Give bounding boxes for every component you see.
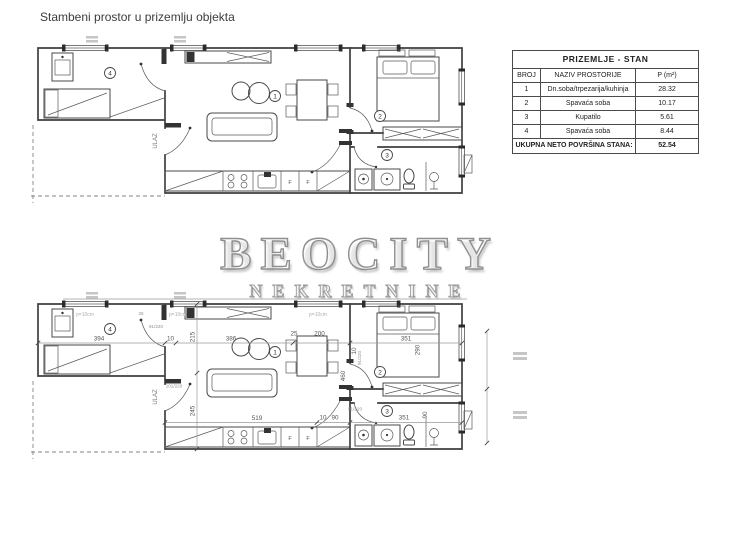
total-value: 52.54 [636,139,699,154]
scanned-floor-plan-page: Stambeni prostor u prizemlju objekta [0,0,740,550]
table-row: 4 Spavaća soba 8.44 [513,125,699,139]
dim-wall-10: 10 [319,415,327,422]
table-total-row: UKUPNA NETO POVRŠINA STANA: 52.54 [513,139,699,154]
room-name: Spavaća soba [541,97,636,111]
room-name: Spavaća soba [541,125,636,139]
room-no: 3 [513,111,541,125]
table-title: PRIZEMLJE - STAN [513,51,699,69]
door-size-label: 91/220 [357,351,362,365]
dim-height-245: 245 [190,405,197,416]
dim-table: 200 [314,331,325,338]
room-area: 28.32 [636,83,699,97]
table-row: 3 Kupatilo 5.61 [513,111,699,125]
dim-height-215: 215 [190,331,197,342]
door-size-label: 91/220 [348,407,362,412]
floor-plan-bottom [31,292,472,459]
table-row: 1 Dn.soba/trpezarija/kuhinja 28.32 [513,83,699,97]
dim-height-460: 460 [340,370,347,381]
col-header-broj: BROJ [513,69,541,83]
col-header-naziv: NAZIV PROSTORIJE [541,69,636,83]
room-name: Dn.soba/trpezarija/kuhinja [541,83,636,97]
parapet-label: p=10cm [309,312,327,318]
dim-90: 90 [422,411,429,419]
table-header-row: BROJ NAZIV PROSTORIJE P (m²) [513,69,699,83]
dim-kitchen-519: 519 [252,415,263,422]
floor-plan-top [31,36,472,203]
room-area: 8.44 [636,125,699,139]
total-label: UKUPNA NETO POVRŠINA STANA: [513,139,636,154]
room-area: 5.61 [636,111,699,125]
window-mark [513,352,527,419]
dim-bedroom-width: 351 [401,336,412,343]
room-no: 4 [513,125,541,139]
door-size-label: 91/220 [149,324,163,329]
dim-offset: 25 [290,331,298,338]
room-no: 2 [513,97,541,111]
col-header-area: P (m²) [636,69,699,83]
parapet-label: p=10cm [169,312,187,318]
dim-living-width: 386 [226,336,237,343]
dimension-annotations: 394 10 386 25 200 351 215 245 460 290 10… [36,299,527,451]
door-size-label: 101/220 [166,384,183,389]
dim-wall: 10 [167,336,175,343]
room-no: 1 [513,83,541,97]
area-table: PRIZEMLJE - STAN BROJ NAZIV PROSTORIJE P… [512,50,699,154]
table-row: 2 Spavaća soba 10.17 [513,97,699,111]
door-offset-label: 25 [138,311,144,316]
parapet-label: p=10cm [76,312,94,318]
dim-bed-290: 290 [415,344,422,355]
room-name: Kupatilo [541,111,636,125]
dim-bath-width: 351 [399,415,410,422]
dim-room4-width: 394 [94,336,105,343]
room-area: 10.17 [636,97,699,111]
dim-door-90: 90 [331,415,339,422]
